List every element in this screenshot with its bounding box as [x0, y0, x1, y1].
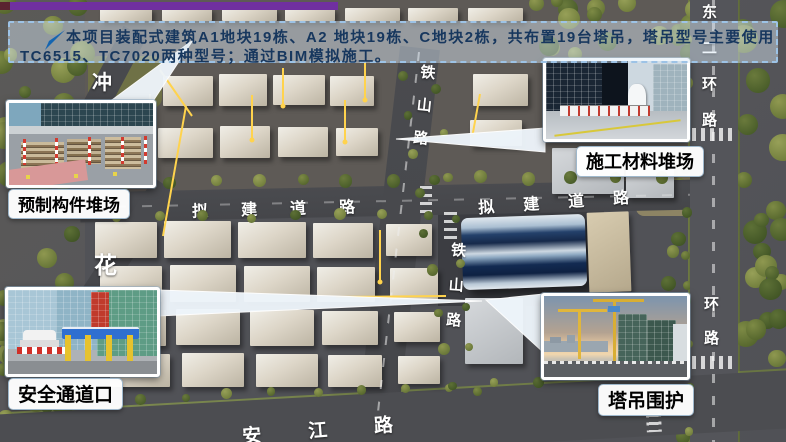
crane-fence-photo [544, 296, 687, 377]
pointer-safety-gate [158, 290, 482, 316]
inset-precast-yard [6, 100, 156, 188]
label-crane-fence: 塔吊围护 [598, 384, 694, 416]
inset-safety-gate [5, 287, 160, 377]
accent-bar-tip [0, 2, 10, 10]
accent-bar [10, 2, 338, 10]
label-material-yard: 施工材料堆场 [576, 146, 704, 177]
precast-yard-photo [9, 103, 153, 185]
material-yard-photo [546, 61, 687, 139]
label-safety-gate: 安全通道口 [8, 378, 123, 410]
crane-marker-lines [150, 60, 480, 297]
safety-gate-photo [8, 290, 157, 374]
pointer-material-yard [396, 128, 545, 152]
callout-pointers [112, 40, 545, 352]
label-precast-yard: 预制构件堆场 [8, 189, 130, 219]
banner-text-line1: 本项目装配式建筑A1地块19栋、A2 地块19栋、C地块2栋，共布置19台塔吊，… [20, 26, 775, 47]
slide: 拟建道路 拟建道路 铁山路 铁山路 东二环路 环路 花 冲 安江路 [0, 0, 786, 442]
banner-text-line2: TC6515、TC7020两种型号；通过BIM模拟施工。 [20, 45, 391, 66]
title-banner: 本项目装配式建筑A1地块19栋、A2 地块19栋、C地块2栋，共布置19台塔吊，… [8, 21, 778, 63]
inset-material-yard [543, 58, 690, 142]
pointer-crane-fence [486, 294, 543, 352]
inset-crane-fence [541, 293, 690, 380]
